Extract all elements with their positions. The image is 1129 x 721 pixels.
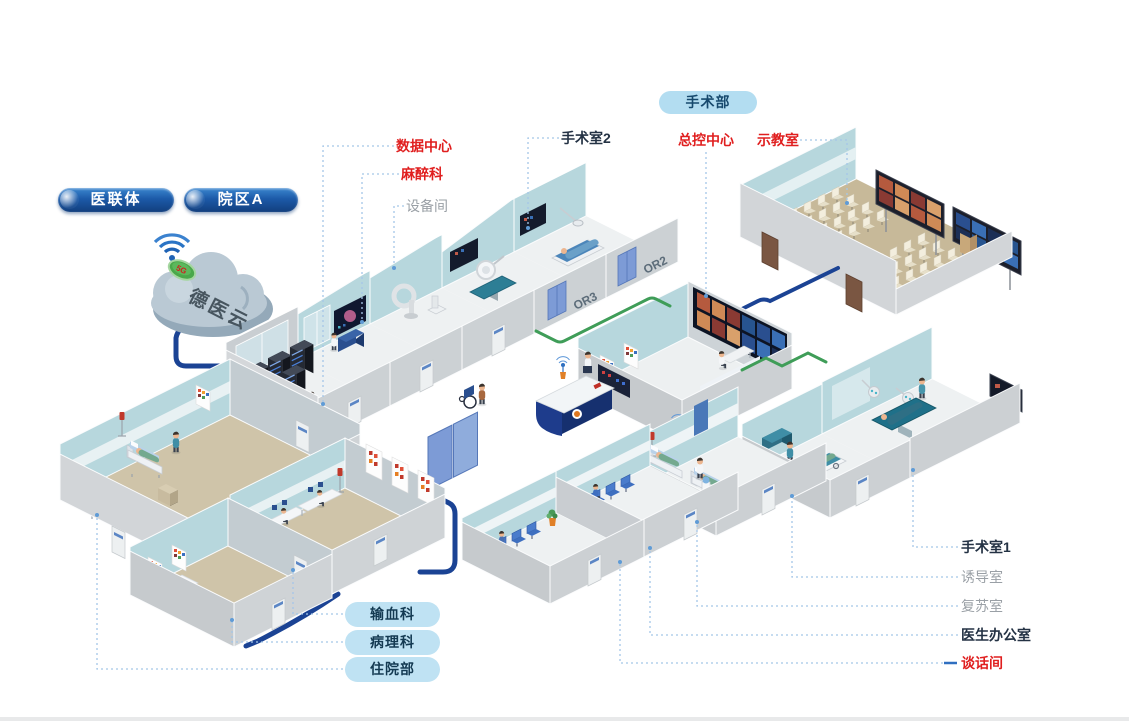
- corridor-floor-doors: [428, 412, 478, 490]
- label-anesthesiology: 麻醉科: [401, 167, 443, 181]
- badge-medical-consortium-label: 医联体: [90, 191, 141, 208]
- label-operating-room-2: 手术室2: [561, 131, 611, 145]
- label-induction-room: 诱导室: [961, 570, 1003, 584]
- bottom-edge-strip: [0, 717, 1129, 721]
- wifi-antenna-1: [557, 357, 570, 379]
- hospital-isometric-diagram: 德医云 5G: [0, 0, 1129, 721]
- cloud-wifi-icon: [155, 235, 189, 261]
- pill-blood-transfusion: 输血科: [345, 602, 440, 627]
- badge-campus-a: 院区A: [184, 188, 298, 212]
- badge-campus-a-label: 院区A: [218, 191, 265, 208]
- badge-surgery-department: 手术部: [659, 91, 757, 114]
- scene-illustration: 德医云 5G: [0, 0, 1129, 721]
- pill-inpatient-dept: 住院部: [345, 657, 440, 682]
- label-talk-room: 谈话间: [961, 656, 1003, 670]
- man-pushing-wheelchair: [460, 384, 487, 408]
- room-demo-classroom: [740, 127, 1021, 315]
- pill-highlight: [186, 190, 205, 209]
- label-demo-classroom: 示教室: [757, 133, 799, 147]
- label-equipment-room: 设备间: [406, 199, 448, 213]
- medical-cloud: 德医云 5G: [151, 252, 273, 337]
- badge-medical-consortium: 医联体: [58, 188, 174, 212]
- label-doctor-office: 医生办公室: [961, 628, 1031, 642]
- label-recovery-room: 复苏室: [961, 599, 1003, 613]
- label-master-control-center: 总控中心: [678, 133, 734, 147]
- pill-pathology: 病理科: [345, 630, 440, 655]
- pill-highlight: [60, 190, 79, 209]
- label-data-center: 数据中心: [396, 139, 452, 153]
- label-operating-room-1: 手术室1: [961, 540, 1011, 554]
